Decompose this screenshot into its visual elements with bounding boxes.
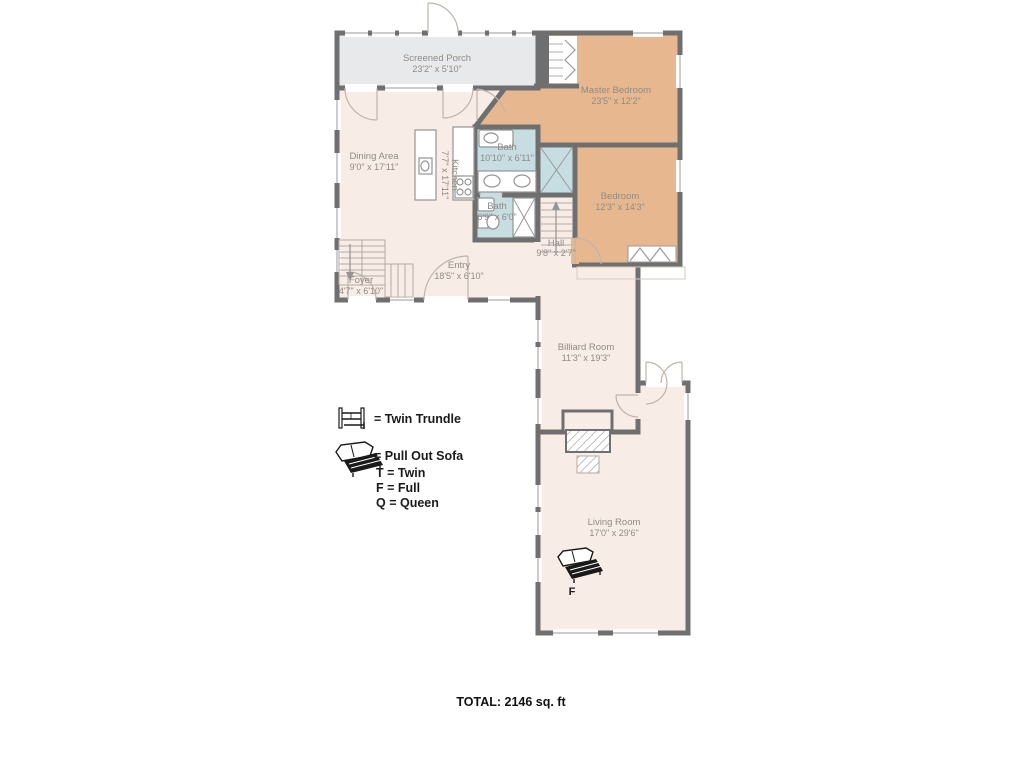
label-bath-upper: Bath [497,142,517,153]
twin-trundle-icon [339,408,364,429]
porch-block [534,35,579,86]
dims-dining-area: 9'0" x 17'11" [350,162,399,172]
sofa-size-label: F [569,586,576,598]
opening [542,261,572,270]
label-master-bedroom: Master Bedroom [581,85,651,96]
legend-queen: Q = Queen [376,496,439,510]
floor-plan-page: F Screened Porch 23'2" x 5'10" Master Be… [0,0,1024,768]
tub-basin-icon [484,133,498,143]
chimney-block [536,35,549,86]
bedroom-closet [628,246,676,262]
label-foyer: Foyer [349,275,373,286]
dims-screened-porch: 23'2" x 5'10" [412,64,461,74]
burner-icon [465,189,471,195]
dims-hall: 9'8" x 2'7" [536,248,575,258]
rooms-layer [337,33,688,633]
legend-full: F = Full [376,481,420,495]
dims-bath-lower: 6'9" x 6'0" [477,212,516,222]
legend-twin: T = Twin [376,466,425,480]
label-living: Living Room [588,517,641,528]
floor-plan-canvas: F Screened Porch 23'2" x 5'10" Master Be… [0,0,1024,768]
label-bath-lower: Bath [487,201,507,212]
door-gap [634,393,642,419]
sink-icon [484,175,500,187]
chimney-icon [566,430,610,452]
dims-foyer: 4'7" x 6'10" [339,286,383,296]
dims-entry: 18'5" x 6'10" [434,271,483,281]
label-bedroom: Bedroom [601,191,640,202]
legend-pull-out-sofa: = Pull Out Sofa [374,449,464,463]
dims-master-bedroom: 23'5" x 12'2" [591,96,640,106]
dims-billiard: 11'3" x 19'3" [562,353,611,363]
burner-icon [465,179,471,185]
sink-icon [421,161,429,171]
legend: = Twin Trundle = Pull Out Sofa T = Twin … [336,408,464,510]
porch-screen-windows [345,29,532,37]
legend-twin-trundle: = Twin Trundle [374,412,461,426]
porch-bottom-openings [345,84,473,92]
door-gap [646,379,682,387]
dims-bedroom: 12'3" x 14'3" [595,202,644,212]
label-billiard: Billiard Room [558,342,615,353]
sink-icon [514,175,530,187]
dims-kitchen: 7'7" x 17'11" [440,151,450,200]
label-dining-area: Dining Area [349,151,399,162]
dims-living: 17'0" x 29'6" [589,528,638,538]
label-entry: Entry [448,260,470,271]
total-area-label: TOTAL: 2146 sq. ft [456,695,566,709]
label-screened-porch: Screened Porch [403,53,471,64]
dims-bath-upper: 10'10" x 6'11" [480,153,534,163]
hearth-icon [577,456,599,473]
door-arc [428,3,458,33]
